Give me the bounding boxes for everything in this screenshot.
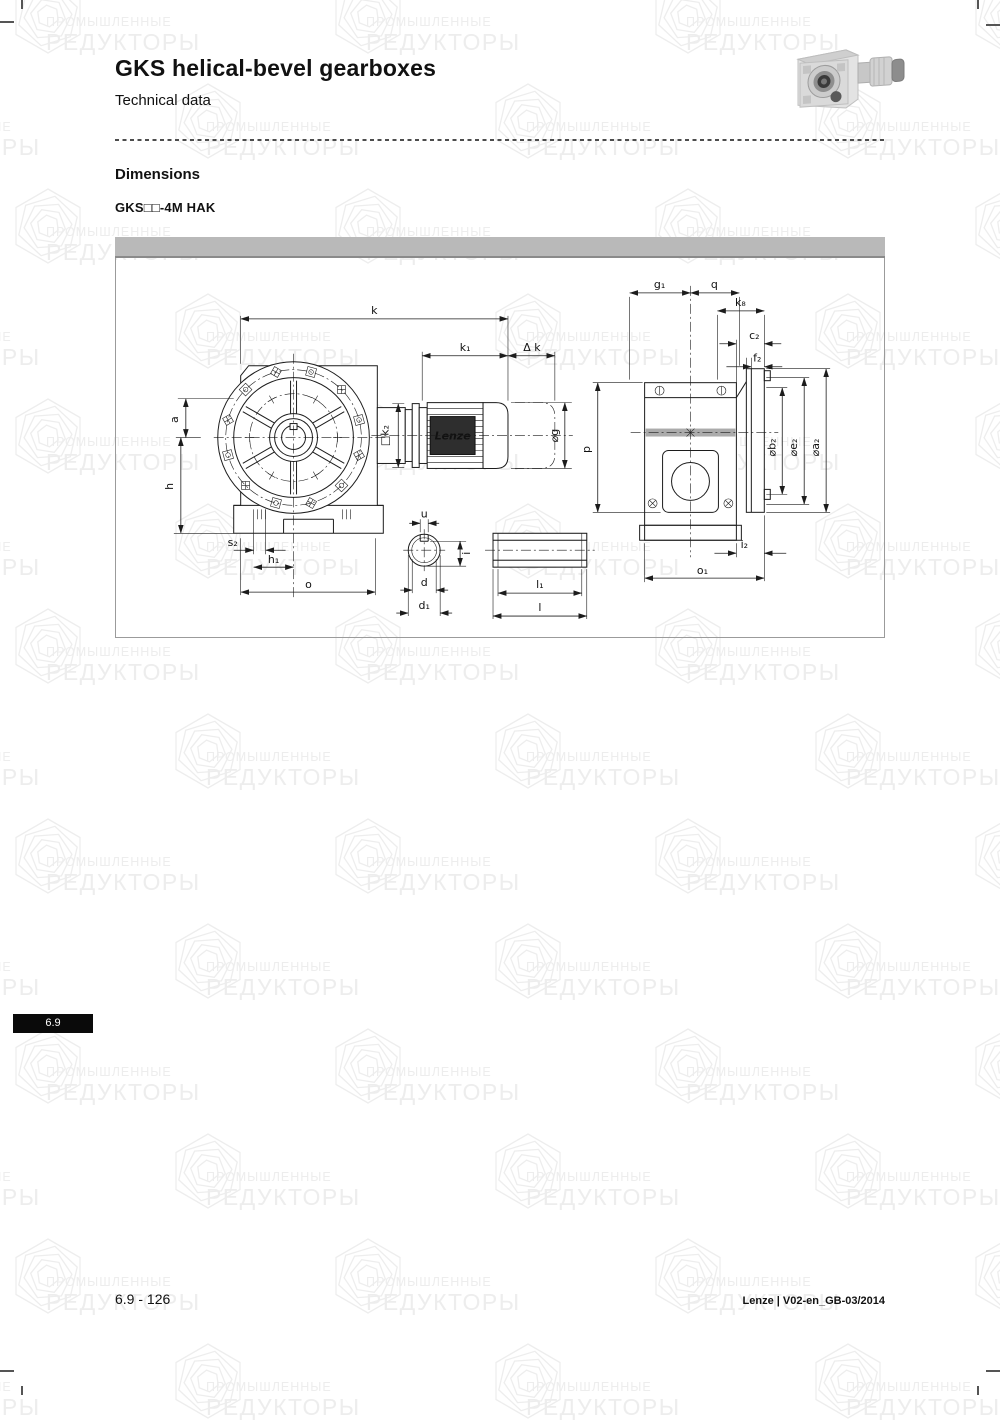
nameplate-text: Lenze bbox=[435, 430, 472, 443]
section-heading: Dimensions bbox=[115, 166, 200, 183]
dim-label-k2: □k₂ bbox=[378, 425, 391, 446]
dim-label-b2: ⌀b₂ bbox=[765, 439, 778, 457]
crop-mark bbox=[977, 0, 979, 9]
dim-label-o1: o₁ bbox=[697, 564, 708, 577]
dashed-separator bbox=[115, 139, 885, 141]
dim-label-h1: h₁ bbox=[268, 553, 279, 566]
dimension-drawing-panel: Lenze bbox=[115, 237, 885, 638]
footer-page-number: 6.9 - 126 bbox=[115, 1291, 170, 1307]
panel-header-bar bbox=[115, 237, 885, 258]
dim-label-u: u bbox=[421, 507, 428, 520]
model-designation: GKS□□-4M HAK bbox=[115, 200, 215, 215]
dim-label-c2: c₂ bbox=[749, 329, 759, 342]
dim-label-l: l bbox=[538, 601, 541, 614]
dim-label-s2: s₂ bbox=[228, 536, 238, 549]
product-photo bbox=[788, 42, 910, 124]
technical-drawing: Lenze bbox=[116, 258, 884, 637]
dim-label-g: ⌀g bbox=[548, 429, 561, 443]
dim-label-o: o bbox=[305, 578, 312, 591]
crop-mark bbox=[986, 1370, 1000, 1372]
crop-mark bbox=[0, 1370, 14, 1372]
crop-mark bbox=[21, 1386, 23, 1395]
footer-document-id: Lenze | V02-en_GB-03/2014 bbox=[585, 1295, 885, 1307]
panel-body: Lenze bbox=[115, 258, 885, 638]
crop-mark bbox=[0, 21, 14, 23]
section-tab: 6.9 bbox=[13, 1014, 93, 1033]
dim-label-h: h bbox=[163, 483, 176, 490]
dim-label-dk: Δ k bbox=[523, 341, 541, 354]
mounting-flange bbox=[746, 369, 764, 513]
dim-label-d: d bbox=[421, 576, 428, 589]
page-subtitle: Technical data bbox=[115, 92, 211, 109]
crop-mark bbox=[21, 0, 23, 9]
dim-label-f2: f₂ bbox=[753, 352, 761, 365]
dim-label-d1: d₁ bbox=[419, 599, 430, 612]
dim-label-k8: k₈ bbox=[735, 296, 746, 309]
dim-label-a: a bbox=[168, 416, 181, 423]
dim-label-k: k bbox=[371, 304, 378, 317]
page-title: GKS helical-bevel gearboxes bbox=[115, 55, 436, 82]
dim-label-g1: g₁ bbox=[654, 278, 665, 291]
dim-label-i2: i₂ bbox=[741, 538, 748, 551]
dim-label-e2: ⌀e₂ bbox=[787, 439, 800, 457]
dim-label-a2: ⌀a₂ bbox=[809, 439, 822, 457]
crop-mark bbox=[977, 1386, 979, 1395]
dim-label-l1: l₁ bbox=[536, 578, 543, 591]
dim-label-p: p bbox=[580, 446, 593, 453]
dim-label-k1: k₁ bbox=[460, 341, 471, 354]
dim-label-q: q bbox=[711, 278, 718, 291]
dim-label-i: i bbox=[460, 552, 473, 555]
crop-mark bbox=[986, 24, 1000, 26]
